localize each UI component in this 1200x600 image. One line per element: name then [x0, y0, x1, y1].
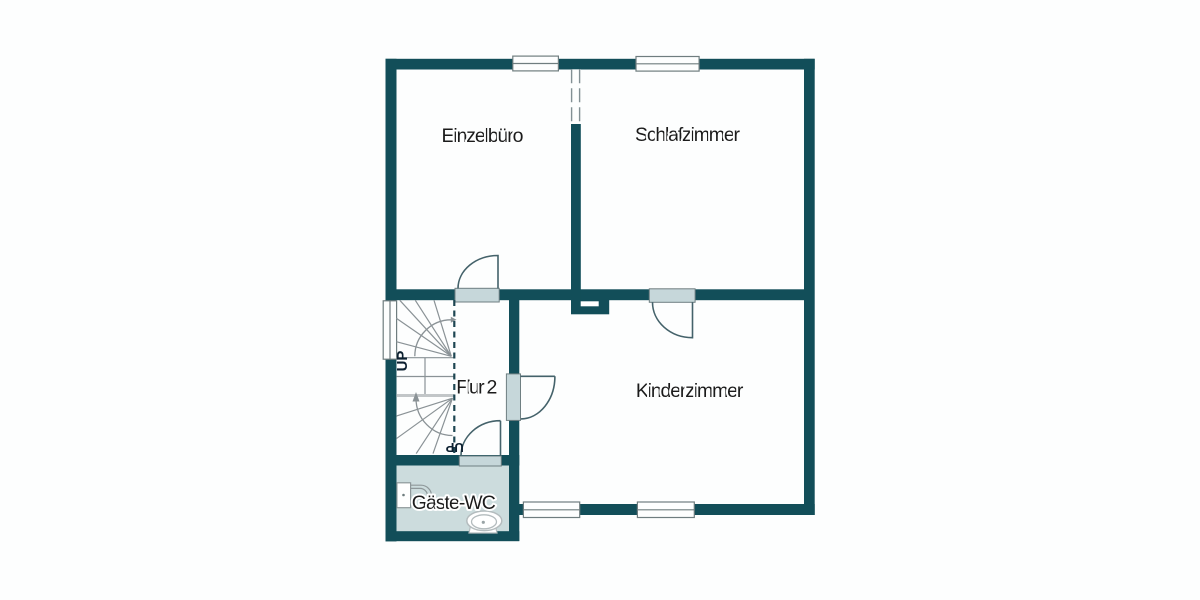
svg-text:Flur 2: Flur 2 — [456, 377, 497, 399]
svg-text:Kinderzimmer: Kinderzimmer — [636, 380, 744, 402]
svg-text:UP: UP — [445, 440, 463, 455]
svg-text:Schlafzimmer: Schlafzimmer — [635, 124, 741, 146]
svg-text:Gäste-WC: Gäste-WC — [412, 492, 496, 514]
svg-text:Einzelbüro: Einzelbüro — [442, 125, 524, 147]
svg-text:UP: UP — [394, 351, 411, 372]
